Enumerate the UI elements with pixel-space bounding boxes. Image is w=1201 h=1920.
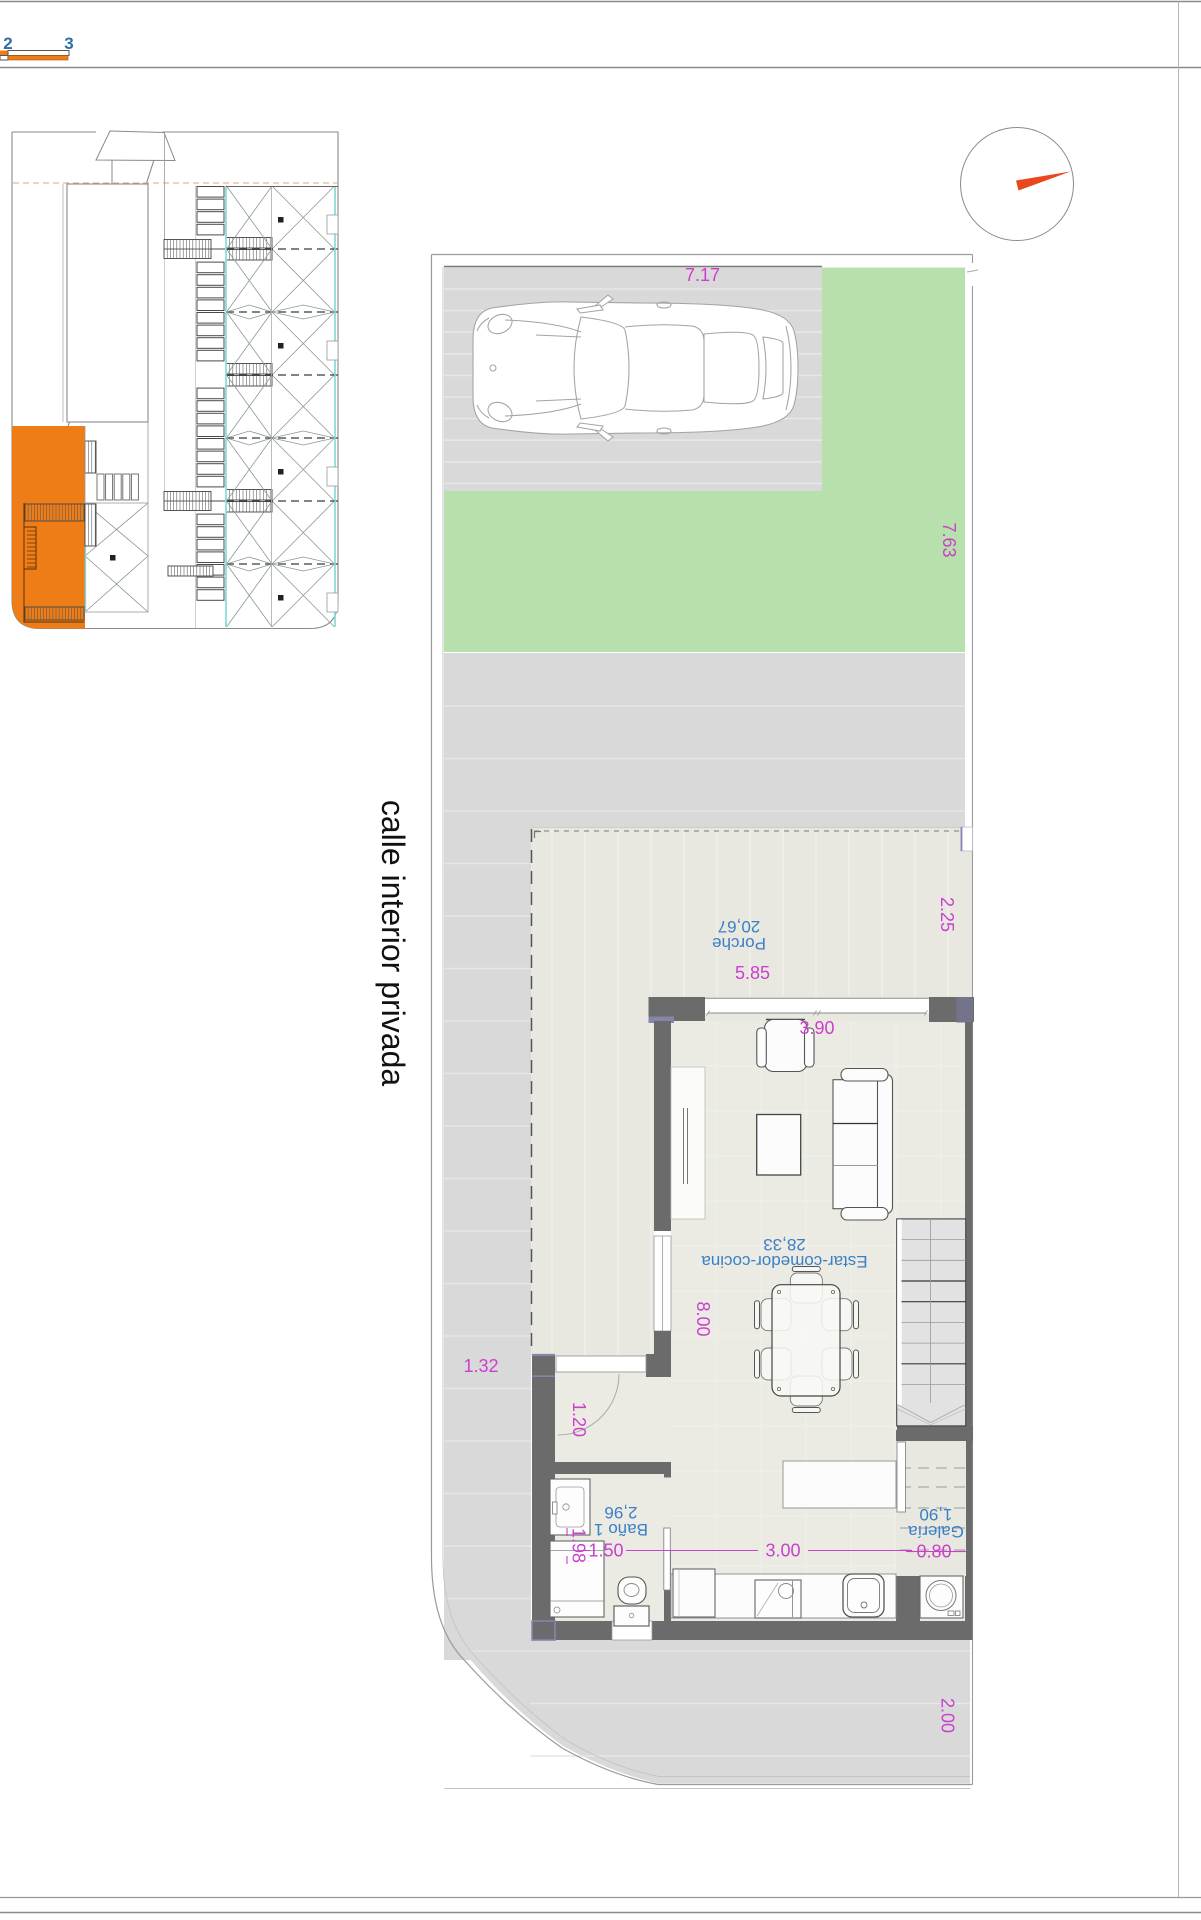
svg-text:2.00: 2.00 (938, 1698, 958, 1733)
svg-text:1.32: 1.32 (463, 1356, 498, 1376)
svg-text:3.00: 3.00 (765, 1541, 800, 1561)
svg-text:28,33: 28,33 (763, 1235, 806, 1254)
svg-text:calle interior privada: calle interior privada (375, 800, 411, 1087)
svg-text:3.90: 3.90 (799, 1018, 834, 1038)
svg-text:20,67: 20,67 (718, 917, 761, 936)
svg-text:1.98: 1.98 (569, 1528, 589, 1563)
svg-text:2,96: 2,96 (604, 1503, 637, 1522)
svg-text:7.63: 7.63 (939, 522, 959, 557)
svg-text:8.00: 8.00 (693, 1301, 713, 1336)
svg-text:1.20: 1.20 (569, 1402, 589, 1437)
svg-text:2.25: 2.25 (937, 897, 957, 932)
svg-text:7.17: 7.17 (685, 265, 720, 285)
svg-text:1.50: 1.50 (588, 1541, 623, 1561)
svg-text:5.85: 5.85 (735, 963, 770, 983)
svg-text:1,90: 1,90 (919, 1505, 952, 1524)
